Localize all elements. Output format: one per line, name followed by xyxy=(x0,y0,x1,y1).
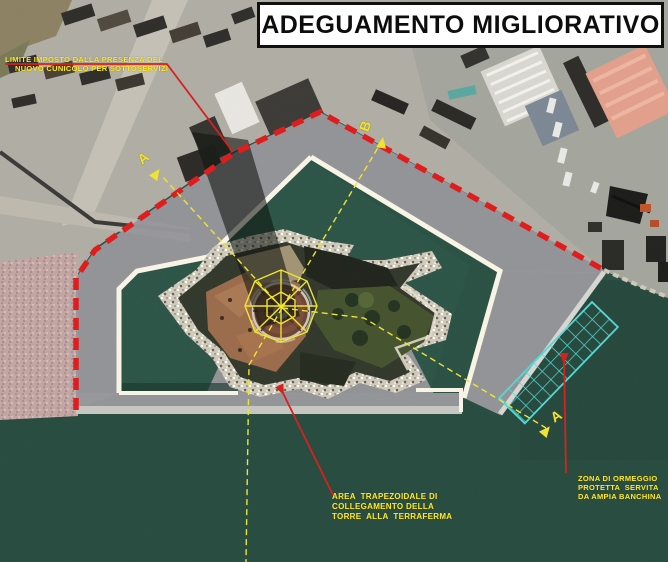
label-area-line3: TORRE ALLA TERRAFERMA xyxy=(332,512,452,522)
label-area-line2: COLLEGAMENTO DELLA xyxy=(332,502,452,512)
photo-grain xyxy=(0,0,668,562)
label-area-line1: AREA TRAPEZOIDALE DI xyxy=(332,492,452,502)
label-zona-line2: PROTETTA SERVITA xyxy=(578,483,661,492)
title-text: ADEGUAMENTO MIGLIORATIVO xyxy=(261,11,660,40)
label-limite: LIMITE IMPOSTO DALLA PRESENZA DEL NUOVO … xyxy=(5,55,168,73)
title-box: ADEGUAMENTO MIGLIORATIVO xyxy=(257,2,664,48)
label-area: AREA TRAPEZOIDALE DI COLLEGAMENTO DELLA … xyxy=(332,492,452,522)
label-limite-line1: LIMITE IMPOSTO DALLA PRESENZA DEL xyxy=(5,55,168,64)
label-zona: ZONA DI ORMEGGIO PROTETTA SERVITA DA AMP… xyxy=(578,474,661,501)
label-limite-line2: NUOVO CUNICOLO PER SOTTOSERVIZI xyxy=(5,64,168,73)
plan-map: ADEGUAMENTO MIGLIORATIVO LIMITE IMPOSTO … xyxy=(0,0,668,562)
label-zona-line1: ZONA DI ORMEGGIO xyxy=(578,474,661,483)
label-zona-line3: DA AMPIA BANCHINA xyxy=(578,492,661,501)
aerial-plan-drawing xyxy=(0,0,668,562)
tower-axis-octagon xyxy=(245,270,317,342)
